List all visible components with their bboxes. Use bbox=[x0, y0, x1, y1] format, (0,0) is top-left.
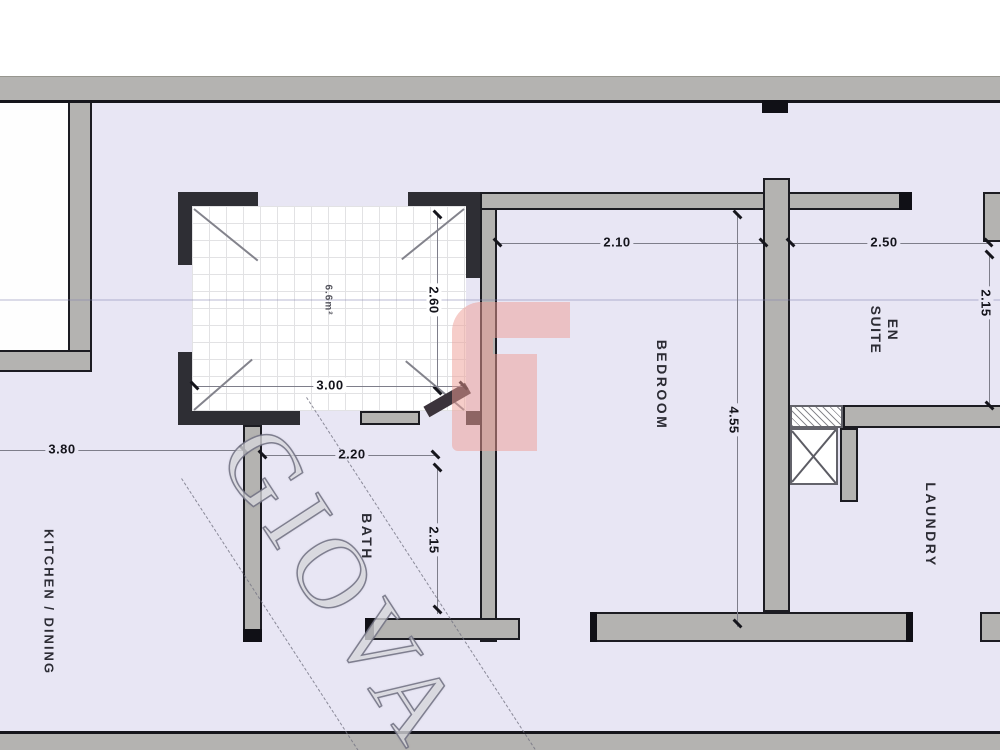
garage-right-wall bbox=[68, 103, 92, 372]
bedroom-bottom-wall bbox=[590, 612, 913, 642]
wall-end-cap bbox=[906, 612, 913, 642]
fold-line bbox=[0, 299, 1000, 301]
laundry-wall-stub bbox=[840, 428, 858, 502]
dim-line bbox=[0, 450, 243, 451]
room-label-laundry: LAUNDRY bbox=[923, 482, 939, 567]
outer-wall-top bbox=[0, 76, 1000, 103]
wall-notch bbox=[762, 100, 788, 113]
garage-room bbox=[0, 103, 70, 350]
dim-bath-height: 2.15 bbox=[427, 523, 442, 556]
terrace-wall bbox=[178, 192, 192, 265]
dim-line bbox=[989, 255, 990, 408]
bedroom-top-wall bbox=[480, 192, 912, 210]
ensuite-bottom-wall bbox=[843, 405, 1000, 428]
dim-ensuite-width: 2.50 bbox=[867, 235, 900, 250]
corridor-right-wall bbox=[980, 612, 1000, 642]
dim-terrace-height: 2.60 bbox=[427, 283, 442, 316]
room-label-kitchen: KITCHEN / DINING bbox=[42, 529, 57, 675]
floor-plan: 2.10 2.50 2.15 2.60 3.00 3.80 2.20 2.15 … bbox=[0, 0, 1000, 750]
dim-bedroom-height: 4.55 bbox=[727, 403, 742, 436]
terrace-wall bbox=[360, 411, 420, 425]
duct-shaft bbox=[790, 428, 838, 485]
wall-end-cap bbox=[899, 192, 912, 210]
hatched-wall bbox=[790, 405, 843, 428]
dim-terrace-width: 3.00 bbox=[313, 378, 346, 393]
room-label-terrace-area: 6.6m² bbox=[323, 284, 334, 315]
room-label-bedroom: BEDROOM bbox=[654, 340, 670, 431]
garage-bottom-wall bbox=[0, 350, 92, 372]
wall-end-cap bbox=[243, 629, 262, 642]
dim-kitchen-width: 3.80 bbox=[45, 442, 78, 457]
ensuite-corner-wall bbox=[983, 192, 1000, 242]
room-label-ensuite: EN SUITE bbox=[867, 301, 901, 359]
dim-ensuite-height: 2.15 bbox=[979, 286, 994, 319]
dim-bedroom-width: 2.10 bbox=[600, 235, 633, 250]
wall-end-cap bbox=[590, 612, 597, 642]
